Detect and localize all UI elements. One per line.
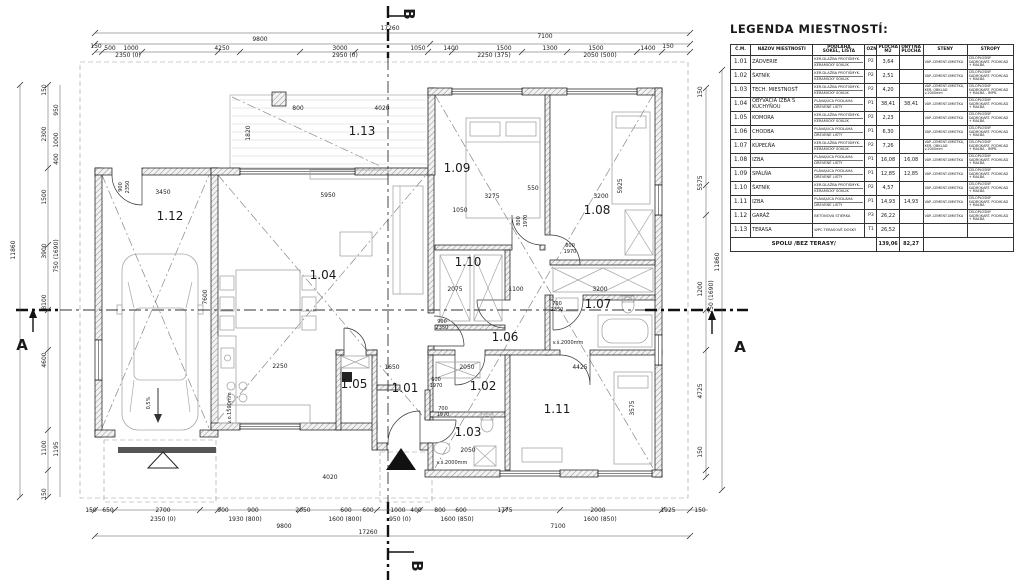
legend-cell: SPÁLŇA: [751, 168, 813, 182]
legend-cell: [923, 224, 967, 238]
dim-label: 17260: [358, 529, 377, 536]
section-letter: B: [408, 560, 426, 571]
furniture: [117, 112, 653, 466]
legend-cell: KOMORA: [751, 112, 813, 126]
legend-cell: PLÁVAJÚCA PODLAHADREVENÉ LIŠTY: [813, 126, 865, 140]
dim-label: 1300: [542, 45, 557, 52]
legend-cell: [899, 56, 923, 70]
dim-label: 950: [53, 104, 60, 116]
legend-cell: 1.07: [731, 140, 751, 154]
legend-cell: 1.10: [731, 182, 751, 196]
room-label: 1.12: [157, 209, 184, 223]
legend-row: 1.04OBÝVACIA IZBA S KUCHYŇOUPLÁVAJÚCA PO…: [731, 98, 1014, 112]
legend-cell: VÁP.-CEMENT.OMIETKA: [923, 126, 967, 140]
legend-cell: 1.02: [731, 70, 751, 84]
dim-label: 1500: [588, 45, 603, 52]
dim-label: 1820: [245, 125, 252, 140]
dim-label: 2700: [155, 507, 170, 514]
legend-body: 1.01ZÁDVERIEKER.DLAŽBA PROTIŠMYK.KERAMIC…: [731, 56, 1014, 238]
dim-label: 1000: [390, 507, 405, 514]
legend-cell: VÁP.-CEMENT.OMIETKA: [923, 112, 967, 126]
legend: LEGENDA MIESTNOSTÍ: Č.M.NÁZOV MIESTNOSTI…: [730, 22, 1014, 252]
dim-label: 1100: [41, 440, 48, 455]
dim-label: 1500: [496, 45, 511, 52]
dim-label: 750 (1690): [708, 280, 715, 313]
legend-total-area: 139,06: [877, 238, 899, 252]
legend-cell: PLÁVAJÚCA PODLAHADREVENÉ LIŠTY: [813, 98, 865, 112]
dim-label: 800: [434, 507, 446, 514]
dim-label: 3450: [155, 189, 170, 196]
dim-label: 2000: [590, 507, 605, 514]
legend-cell: 1.05: [731, 112, 751, 126]
room-label: 1.11: [544, 402, 571, 416]
legend-cell: CELOPLOŠNÝ SADROKART. PODHĽAD + MAĽBA: [967, 126, 1013, 140]
dim-label: 950 (0): [389, 516, 411, 523]
floor-plan-sheet: 1726098007100150500100042503000105014001…: [0, 0, 1024, 587]
bathtub: [602, 319, 648, 343]
legend-cell: [899, 112, 923, 126]
dim-label: 1600 (850): [583, 516, 616, 523]
legend-cell: CELOPLOŠNÝ SADROKART. PODHĽAD + MAĽBA: [967, 182, 1013, 196]
legend-cell: VÁP.-CEMENT.OMIETKA, KER. OBKLAD v.2000m…: [923, 84, 967, 98]
dim-label: 1930 (800): [228, 516, 261, 523]
legend-row: 1.12GARÁŽBETÓNOVÁ STIERKAP326,22VÁP.-CEM…: [731, 210, 1014, 224]
room-label: 1.01: [392, 381, 419, 395]
legend-cell: 1.08: [731, 154, 751, 168]
legend-cell: CELOPLOŠNÝ SADROKART. PODHĽAD + MAĽBA: [967, 112, 1013, 126]
entrance-arrow: [386, 448, 416, 470]
car-icon: [117, 254, 203, 430]
dim-label: 1000: [53, 132, 60, 147]
legend-cell: P2: [865, 182, 877, 196]
dining-table: [220, 270, 316, 330]
kitchen-sink: [221, 348, 234, 368]
room-103-door: [433, 420, 456, 443]
dim-label: 1600 (800): [328, 516, 361, 523]
sink: [434, 442, 450, 454]
legend-row: 1.02ŠATNÍKKER.DLAŽBA PROTIŠMYK.KERAMICKÝ…: [731, 70, 1014, 84]
dim-label: 2350 (0): [115, 52, 141, 59]
dim-label: 3200: [593, 193, 608, 200]
legend-cell: CHODBA: [751, 126, 813, 140]
legend-cell: KER.DLAŽBA PROTIŠMYK.KERAMICKÝ SOKLÍK: [813, 56, 865, 70]
dim-label: 1970: [523, 215, 529, 228]
legend-cell: VÁP.-CEMENT.OMIETKA: [923, 70, 967, 84]
legend-cell: ŠATNÍK: [751, 70, 813, 84]
legend-total-living: 82,27: [899, 238, 923, 252]
dim-label: 5950: [320, 192, 335, 199]
slope-arrow: [154, 388, 162, 423]
legend-cell: CELOPLOŠNÝ SADROKART. PODHĽAD + MAĽBA: [967, 168, 1013, 182]
dim-label: 2050: [460, 447, 475, 454]
legend-cell: P2: [865, 56, 877, 70]
legend-table: Č.M.NÁZOV MIESTNOSTIPODLAHASOKEL, LIŠTAO…: [730, 44, 1014, 252]
dim-label: 1400: [443, 45, 458, 52]
legend-cell: 12,85: [877, 168, 899, 182]
dim-label: 1925: [660, 507, 675, 514]
room-label: 1.02: [470, 379, 497, 393]
legend-cell: VÁP.-CEMENT.OMIETKA: [923, 154, 967, 168]
legend-cell: PLÁVAJÚCA PODLAHADREVENÉ LIŠTY: [813, 168, 865, 182]
dim-label: 150: [694, 507, 706, 514]
dim-label: 2350: [125, 181, 131, 194]
dim-label: 9800: [276, 523, 291, 530]
walls: [95, 88, 662, 477]
legend-cell: 1.12: [731, 210, 751, 224]
legend-row: 1.07KÚPEĽŇAKER.DLAŽBA PROTIŠMYK.KERAMICK…: [731, 140, 1014, 154]
legend-cell: CELOPLOŠNÝ SADROKART. PODHĽAD + MAĽBA - …: [967, 140, 1013, 154]
legend-cell: [899, 140, 923, 154]
dim-label: 2050: [459, 364, 474, 371]
legend-row: 1.11IZBAPLÁVAJÚCA PODLAHADREVENÉ LIŠTYP1…: [731, 196, 1014, 210]
komora-door: [344, 328, 366, 350]
room-label: 1.13: [349, 124, 376, 138]
legend-cell: [899, 126, 923, 140]
legend-cell: KER.DLAŽBA PROTIŠMYK.KERAMICKÝ SOKLÍK: [813, 112, 865, 126]
dim-label: 17260: [380, 25, 399, 32]
legend-cell: CELOPLOŠNÝ SADROKART. PODHĽAD + MAĽBA: [967, 210, 1013, 224]
windows: [95, 89, 662, 476]
legend-cell: 38,41: [877, 98, 899, 112]
dim-label: 11860: [10, 240, 17, 259]
dim-label: 1050: [452, 207, 467, 214]
legend-cell: 16,08: [899, 154, 923, 168]
legend-cell: [899, 70, 923, 84]
legend-cell: 4,57: [877, 182, 899, 196]
dim-label: 4020: [374, 105, 389, 112]
room-label: 1.10: [455, 255, 482, 269]
dim-label: 1100: [508, 286, 523, 293]
legend-col-header: PLOCHAM2: [877, 45, 899, 56]
legend-cell: GARÁŽ: [751, 210, 813, 224]
legend-cell: P2: [865, 84, 877, 98]
dim-label: 7600: [202, 289, 209, 304]
legend-cell: KER.DLAŽBA PROTIŠMYK.KERAMICKÝ SOKLÍK: [813, 140, 865, 154]
dim-label: 5925: [617, 178, 624, 193]
legend-cell: VÁP.-CEMENT.OMIETKA: [923, 210, 967, 224]
dim-label: 1200: [697, 281, 704, 296]
legend-cell: 14,93: [877, 196, 899, 210]
legend-row: 1.03TECH. MIESTNOSŤKER.DLAŽBA PROTIŠMYK.…: [731, 84, 1014, 98]
wc-103-fixtures: [434, 414, 496, 466]
legend-cell: CELOPLOŠNÝ SADROKART. PODHĽAD + MAĽBA: [967, 70, 1013, 84]
legend-cell: P3: [865, 210, 877, 224]
dim-label: v.š.2000mm: [553, 339, 584, 346]
legend-cell: T1: [865, 224, 877, 238]
terrace-column: [272, 92, 286, 106]
legend-cell: ZÁDVERIE: [751, 56, 813, 70]
legend-cell: VÁP.-CEMENT.OMIETKA: [923, 168, 967, 182]
legend-cell: [899, 182, 923, 196]
legend-cell: IZBA: [751, 196, 813, 210]
dim-label: 8100: [41, 294, 48, 309]
legend-cell: BETÓNOVÁ STIERKA: [813, 210, 865, 224]
dim-label: 900: [118, 182, 124, 192]
dimension-lines: [20, 33, 722, 536]
dim-label: 4600: [41, 352, 48, 367]
dim-label: 1970: [564, 249, 577, 255]
room-label: 1.03: [455, 425, 482, 439]
legend-cell: P1: [865, 126, 877, 140]
legend-total-label: SPOLU /BEZ TERASY/: [731, 238, 877, 252]
dim-label: 600: [340, 507, 352, 514]
legend-cell: 1.04: [731, 98, 751, 112]
room-label: 1.09: [444, 161, 471, 175]
dim-label: 11860: [714, 252, 721, 271]
legend-cell: 4,20: [877, 84, 899, 98]
legend-cell: OBÝVACIA IZBA S KUCHYŇOU: [751, 98, 813, 112]
dim-label: 1000: [123, 45, 138, 52]
legend-cell: VÁP.-CEMENT.OMIETKA: [923, 182, 967, 196]
dim-label: 2350: [436, 325, 449, 331]
dim-label: 2075: [447, 286, 462, 293]
dim-label: 2250 (375): [477, 52, 510, 59]
toilet: [481, 416, 493, 432]
roof-overhang: [80, 62, 688, 498]
dim-label: 3000: [332, 45, 347, 52]
garage-door-symbol: [148, 452, 178, 468]
legend-cell: [899, 224, 923, 238]
dim-label: 3575: [629, 400, 636, 415]
dim-label: 5575: [697, 175, 704, 190]
dim-label: 2300: [41, 126, 48, 141]
dim-label: 150: [662, 43, 674, 50]
dim-label: 7100: [537, 33, 552, 40]
dim-label: 1650: [384, 364, 399, 371]
dim-label: 4425: [572, 364, 587, 371]
legend-cell: P2: [865, 70, 877, 84]
legend-cell: VÁP.-CEMENT.OMIETKA: [923, 56, 967, 70]
legend-cell: VÁP.-CEMENT.OMIETKA: [923, 196, 967, 210]
room-label: 1.07: [585, 297, 612, 311]
legend-cell: KÚPEĽŇA: [751, 140, 813, 154]
dim-label: 550: [527, 185, 539, 192]
terrace-deck: [230, 92, 428, 168]
legend-cell: IZBA: [751, 154, 813, 168]
legend-cell: CELOPLOŠNÝ SADROKART. PODHĽAD + MAĽBA: [967, 154, 1013, 168]
dim-label: v.š.2000mm: [437, 459, 468, 466]
legend-cell: PLÁVAJÚCA PODLAHADREVENÉ LIŠTY: [813, 196, 865, 210]
section-letter: A: [16, 336, 28, 354]
dim-label: 4725: [697, 383, 704, 398]
bed-109: [466, 118, 540, 218]
section-letter: A: [734, 338, 746, 356]
legend-cell: VÁP.-CEMENT.OMIETKA: [923, 98, 967, 112]
room-label: 1.06: [492, 330, 519, 344]
cabinet: [522, 448, 562, 462]
section-letter: B: [400, 8, 418, 19]
legend-cell: 6,30: [877, 126, 899, 140]
legend-cell: P1: [865, 154, 877, 168]
dim-label: 800: [516, 216, 522, 226]
dim-label: 9800: [252, 36, 267, 43]
legend-cell: TECH. MIESTNOSŤ: [751, 84, 813, 98]
legend-cell: CELOPLOŠNÝ SADROKART. PODHĽAD + MAĽBA - …: [967, 84, 1013, 98]
legend-cell: 3,64: [877, 56, 899, 70]
legend-cell: 1.13: [731, 224, 751, 238]
legend-cell: 14,93: [899, 196, 923, 210]
legend-cell: 26,52: [877, 224, 899, 238]
legend-cell: 1.09: [731, 168, 751, 182]
dim-label: 800: [292, 105, 304, 112]
legend-col-header: OZN.: [865, 45, 877, 56]
dim-label: 150: [85, 507, 97, 514]
dim-label: 2050 (500): [583, 52, 616, 59]
legend-cell: [899, 210, 923, 224]
bed-111: [522, 372, 652, 464]
dim-label: 900: [247, 507, 259, 514]
legend-cell: KER.DLAŽBA PROTIŠMYK.KERAMICKÝ SOKLÍK: [813, 84, 865, 98]
dim-label: 4250: [214, 45, 229, 52]
dim-label: 1050: [410, 45, 425, 52]
legend-cell: P1: [865, 98, 877, 112]
legend-col-header: STENY: [923, 45, 967, 56]
dim-label: 1400: [640, 45, 655, 52]
legend-cell: CELOPLOŠNÝ SADROKART. PODHĽAD + MAĽBA: [967, 98, 1013, 112]
dim-label: 2350 (0): [150, 516, 176, 523]
legend-cell: P1: [865, 168, 877, 182]
dim-label: 2250: [272, 363, 287, 370]
legend-cell: 7,26: [877, 140, 899, 154]
legend-header-row: Č.M.NÁZOV MIESTNOSTIPODLAHASOKEL, LIŠTAO…: [731, 45, 1014, 56]
legend-cell: 38,41: [899, 98, 923, 112]
legend-cell: [899, 84, 923, 98]
room-label: 1.05: [341, 377, 368, 391]
legend-cell: TERASA: [751, 224, 813, 238]
legend-cell: CELOPLOŠNÝ SADROKART. PODHĽAD + MAĽBA: [967, 196, 1013, 210]
legend-row: 1.01ZÁDVERIEKER.DLAŽBA PROTIŠMYK.KERAMIC…: [731, 56, 1014, 70]
legend-cell: 2,23: [877, 112, 899, 126]
dim-label: 1195: [53, 441, 60, 456]
dim-label: 600: [455, 507, 467, 514]
dim-label: 400: [53, 153, 60, 165]
legend-cell: P2: [865, 112, 877, 126]
dim-label: 1970: [437, 412, 450, 418]
dim-label: 600: [362, 507, 374, 514]
dim-label: v.o.1500mm: [227, 392, 233, 423]
legend-cell: 16,08: [877, 154, 899, 168]
legend-total-row: SPOLU /BEZ TERASY/139,0682,27: [731, 238, 1014, 252]
legend-cell: 1.06: [731, 126, 751, 140]
dim-label: 900: [217, 507, 229, 514]
dim-label: 7100: [550, 523, 565, 530]
dim-label: 2350: [551, 307, 564, 313]
legend-cell: VÁP.-CEMENT.OMIETKA, KER. OBKLAD v.2000m…: [923, 140, 967, 154]
dim-label: 500: [104, 45, 116, 52]
legend-cell: 1.11: [731, 196, 751, 210]
dim-label: 150: [697, 86, 704, 98]
room-label: 1.04: [310, 268, 337, 282]
dim-label: 750 (1690): [53, 239, 60, 272]
legend-cell: KER.DLAŽBA PROTIŠMYK.KERAMICKÝ SOKLÍK: [813, 182, 865, 196]
coffee-table: [340, 232, 372, 256]
legend-col-header: OBYTNÁPLOCHA: [899, 45, 923, 56]
legend-row: 1.13TERASAWPC TERASOVÉ DOSKYT126,52: [731, 224, 1014, 238]
legend-row: 1.09SPÁLŇAPLÁVAJÚCA PODLAHADREVENÉ LIŠTY…: [731, 168, 1014, 182]
legend-col-header: NÁZOV MIESTNOSTI: [751, 45, 813, 56]
legend-cell: [967, 224, 1013, 238]
dim-label: 1775: [497, 507, 512, 514]
legend-title: LEGENDA MIESTNOSTÍ:: [730, 22, 1014, 36]
legend-col-header: PODLAHASOKEL, LIŠTA: [813, 45, 865, 56]
dim-label: 3275: [484, 193, 499, 200]
legend-col-header: STROPY: [967, 45, 1013, 56]
legend-row: 1.10ŠATNÍKKER.DLAŽBA PROTIŠMYK.KERAMICKÝ…: [731, 182, 1014, 196]
legend-cell: ŠATNÍK: [751, 182, 813, 196]
dim-label: 4020: [322, 474, 337, 481]
legend-cell: WPC TERASOVÉ DOSKY: [813, 224, 865, 238]
entrance-door: [388, 411, 420, 443]
legend-cell: 1.03: [731, 84, 751, 98]
legend-cell: KER.DLAŽBA PROTIŠMYK.KERAMICKÝ SOKLÍK: [813, 70, 865, 84]
legend-cell: PLÁVAJÚCA PODLAHADREVENÉ LIŠTY: [813, 154, 865, 168]
legend-row: 1.05KOMORAKER.DLAŽBA PROTIŠMYK.KERAMICKÝ…: [731, 112, 1014, 126]
legend-cell: 1.01: [731, 56, 751, 70]
dim-label: 400: [410, 507, 422, 514]
room-label: 1.08: [584, 203, 611, 217]
legend-total-empty: [923, 238, 1013, 252]
legend-row: 1.06CHODBAPLÁVAJÚCA PODLAHADREVENÉ LIŠTY…: [731, 126, 1014, 140]
dim-label: 1970: [430, 383, 443, 389]
garage-apron: [118, 447, 216, 453]
legend-cell: 26,22: [877, 210, 899, 224]
legend-cell: P1: [865, 196, 877, 210]
dim-label: 0,5%: [146, 396, 152, 409]
dim-label: 1500: [41, 189, 48, 204]
legend-col-header: Č.M.: [731, 45, 751, 56]
legend-row: 1.08IZBAPLÁVAJÚCA PODLAHADREVENÉ LIŠTYP1…: [731, 154, 1014, 168]
legend-cell: CELOPLOŠNÝ SADROKART. PODHĽAD + MAĽBA: [967, 56, 1013, 70]
dim-label: 2050: [295, 507, 310, 514]
legend-cell: P2: [865, 140, 877, 154]
dim-label: 3200: [592, 286, 607, 293]
legend-cell: 12,85: [899, 168, 923, 182]
dim-label: 150: [697, 446, 704, 458]
dim-label: 1600 (850): [440, 516, 473, 523]
legend-cell: 2,51: [877, 70, 899, 84]
